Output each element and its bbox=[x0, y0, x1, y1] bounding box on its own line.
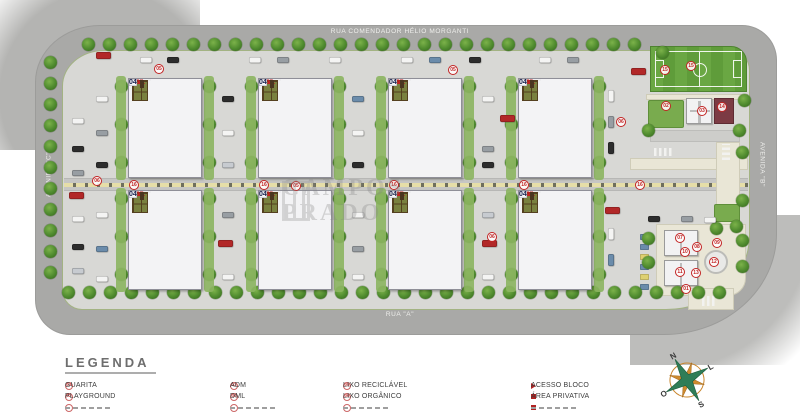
tree bbox=[397, 38, 410, 51]
unit-number: 04 bbox=[259, 191, 267, 198]
map-marker: 03 bbox=[697, 106, 707, 116]
tree bbox=[607, 38, 620, 51]
unit-number: 04 bbox=[129, 191, 137, 198]
crosswalk bbox=[654, 148, 672, 156]
car bbox=[96, 276, 108, 282]
car bbox=[96, 162, 108, 168]
car bbox=[482, 274, 494, 280]
tree bbox=[733, 124, 746, 137]
tree bbox=[692, 286, 705, 299]
waste-bin bbox=[640, 274, 649, 280]
car bbox=[167, 57, 179, 63]
car bbox=[72, 118, 84, 124]
car bbox=[482, 146, 494, 152]
tree bbox=[187, 38, 200, 51]
map-marker: 05 bbox=[448, 65, 458, 75]
compass-south: S bbox=[697, 399, 707, 410]
tree bbox=[355, 38, 368, 51]
car bbox=[329, 57, 341, 63]
legend-label: ACESSO BLOCO bbox=[531, 382, 589, 389]
map-marker: 15 bbox=[686, 61, 696, 71]
legend-label: ÁREA PRIVATIVA bbox=[531, 393, 589, 400]
car bbox=[352, 246, 364, 252]
street-name-top: RUA COMENDADOR HÉLIO MORGANTI bbox=[250, 28, 550, 35]
tree bbox=[44, 245, 57, 258]
tree bbox=[44, 224, 57, 237]
hedge-strip bbox=[376, 76, 386, 180]
legend-label: DML bbox=[230, 393, 245, 400]
car bbox=[72, 170, 84, 176]
tree bbox=[103, 38, 116, 51]
car bbox=[140, 57, 152, 63]
car bbox=[539, 57, 551, 63]
unit-number: 04 bbox=[389, 79, 397, 86]
car bbox=[222, 274, 234, 280]
legend-label-cropped bbox=[343, 407, 389, 409]
unit-number: 04 bbox=[259, 79, 267, 86]
car bbox=[249, 57, 261, 63]
tree bbox=[608, 286, 621, 299]
parking-row bbox=[650, 130, 740, 142]
tree bbox=[586, 38, 599, 51]
tree bbox=[628, 38, 641, 51]
tree bbox=[229, 38, 242, 51]
street-name-bottom: RUA "A" bbox=[330, 311, 470, 318]
tree bbox=[62, 286, 75, 299]
car bbox=[352, 274, 364, 280]
developer-watermark: CAMPOS PRADO bbox=[282, 168, 542, 234]
tree bbox=[271, 38, 284, 51]
car bbox=[482, 96, 494, 102]
compass-west: O bbox=[659, 388, 669, 399]
car bbox=[681, 216, 693, 222]
compass-east: L bbox=[706, 362, 715, 372]
car bbox=[96, 130, 108, 136]
map-marker: 10 bbox=[680, 247, 690, 257]
car bbox=[500, 115, 515, 122]
legend-label-cropped bbox=[65, 407, 111, 409]
tree bbox=[356, 286, 369, 299]
car bbox=[608, 90, 614, 102]
building-strip: 04030102BL.09BL.1002010304 bbox=[258, 78, 332, 178]
map-marker: 02 bbox=[661, 101, 671, 111]
tree bbox=[44, 203, 57, 216]
car bbox=[704, 217, 716, 223]
tree bbox=[376, 38, 389, 51]
tree bbox=[44, 182, 57, 195]
tree bbox=[230, 286, 243, 299]
street-name-left: AVENIDA "C" bbox=[46, 115, 53, 235]
tree bbox=[292, 38, 305, 51]
tree bbox=[44, 56, 57, 69]
tree bbox=[82, 38, 95, 51]
car bbox=[96, 52, 111, 59]
tree bbox=[208, 38, 221, 51]
car bbox=[96, 96, 108, 102]
building-strip: 04030102BL.13BL.1402010304 bbox=[128, 78, 202, 178]
tree bbox=[642, 256, 655, 269]
map-marker: 14 bbox=[717, 102, 727, 112]
tree bbox=[44, 77, 57, 90]
map-marker: 06 bbox=[616, 117, 626, 127]
car bbox=[469, 57, 481, 63]
car bbox=[222, 162, 234, 168]
site-plan-canvas: RUA COMENDADOR HÉLIO MORGANTI RUA "A" AV… bbox=[0, 0, 800, 412]
map-marker: 01 bbox=[681, 284, 691, 294]
map-marker: 08 bbox=[692, 242, 702, 252]
tree bbox=[730, 220, 743, 233]
car bbox=[218, 240, 233, 247]
legend-title: LEGENDA bbox=[65, 355, 156, 374]
goal-box-right bbox=[733, 60, 741, 78]
hedge-strip bbox=[594, 76, 604, 180]
tree bbox=[439, 38, 452, 51]
tree bbox=[738, 94, 751, 107]
map-marker: 16 bbox=[129, 180, 139, 190]
car bbox=[222, 130, 234, 136]
map-marker: 12 bbox=[709, 257, 719, 267]
tree bbox=[482, 286, 495, 299]
map-marker: 06 bbox=[92, 176, 102, 186]
tree bbox=[250, 38, 263, 51]
tree bbox=[565, 38, 578, 51]
tree bbox=[736, 260, 749, 273]
watermark-text: CAMPOS PRADO bbox=[282, 176, 462, 226]
legend-label-cropped bbox=[531, 407, 577, 409]
car bbox=[72, 216, 84, 222]
tree bbox=[736, 146, 749, 159]
hedge-strip bbox=[594, 188, 604, 292]
tree bbox=[83, 286, 96, 299]
building-strip: 04030102BL.01BL.0202010304 bbox=[518, 78, 592, 178]
car bbox=[222, 96, 234, 102]
hedge-strip bbox=[506, 76, 516, 180]
car bbox=[72, 268, 84, 274]
car bbox=[605, 207, 620, 214]
tree bbox=[44, 161, 57, 174]
car bbox=[222, 212, 234, 218]
hedge-strip bbox=[246, 76, 256, 180]
car bbox=[429, 57, 441, 63]
map-marker: 05 bbox=[154, 64, 164, 74]
compass-north: N bbox=[668, 351, 678, 362]
tree bbox=[656, 46, 669, 59]
crosswalk bbox=[702, 296, 716, 306]
building-strip: 04030102BL.15BL.1602010304 bbox=[128, 190, 202, 290]
tree bbox=[642, 124, 655, 137]
car bbox=[608, 116, 614, 128]
tree bbox=[481, 38, 494, 51]
tree bbox=[502, 38, 515, 51]
street-name-right: AVENIDA "B" bbox=[759, 105, 766, 225]
hedge-strip bbox=[204, 76, 214, 180]
map-marker: 09 bbox=[712, 238, 722, 248]
hedge-strip bbox=[116, 188, 126, 292]
car bbox=[352, 130, 364, 136]
compass-rose: N L S O bbox=[655, 348, 719, 412]
tree bbox=[145, 38, 158, 51]
hedge-strip bbox=[246, 188, 256, 292]
car bbox=[69, 192, 84, 199]
tree bbox=[523, 38, 536, 51]
tree bbox=[642, 232, 655, 245]
car bbox=[401, 57, 413, 63]
car bbox=[352, 96, 364, 102]
tree bbox=[629, 286, 642, 299]
map-marker: 07 bbox=[675, 233, 685, 243]
tree bbox=[166, 38, 179, 51]
car bbox=[648, 216, 660, 222]
map-marker: 11 bbox=[675, 267, 685, 277]
tree bbox=[650, 286, 663, 299]
car bbox=[567, 57, 579, 63]
legend-label: GUARITA bbox=[65, 382, 97, 389]
tree bbox=[44, 140, 57, 153]
tree bbox=[418, 38, 431, 51]
map-marker: 15 bbox=[660, 65, 670, 75]
tree bbox=[124, 38, 137, 51]
legend-label-cropped bbox=[230, 407, 276, 409]
tree bbox=[710, 222, 723, 235]
tree bbox=[460, 38, 473, 51]
hedge-strip bbox=[464, 76, 474, 180]
tree bbox=[713, 286, 726, 299]
tree bbox=[313, 38, 326, 51]
hedge-strip bbox=[116, 76, 126, 180]
tree bbox=[44, 119, 57, 132]
tree bbox=[44, 98, 57, 111]
car bbox=[608, 254, 614, 266]
car bbox=[96, 246, 108, 252]
building-strip: 04030102BL.05BL.0602010304 bbox=[388, 78, 462, 178]
map-marker: 16 bbox=[635, 180, 645, 190]
tree bbox=[544, 38, 557, 51]
tree bbox=[334, 38, 347, 51]
legend-label: ADM bbox=[230, 382, 246, 389]
car bbox=[72, 244, 84, 250]
car bbox=[72, 146, 84, 152]
car bbox=[608, 142, 614, 154]
car bbox=[277, 57, 289, 63]
tree bbox=[736, 234, 749, 247]
hedge-strip bbox=[334, 76, 344, 180]
legend-label: LIXO RECICLÁVEL bbox=[343, 382, 407, 389]
unit-number: 04 bbox=[519, 79, 527, 86]
crosswalk bbox=[722, 144, 730, 160]
car bbox=[608, 228, 614, 240]
hedge-strip bbox=[204, 188, 214, 292]
tree bbox=[44, 266, 57, 279]
tree bbox=[736, 194, 749, 207]
legend-label: PLAYGROUND bbox=[65, 393, 116, 400]
legend-label: LIXO ORGÂNICO bbox=[343, 393, 402, 400]
car bbox=[96, 212, 108, 218]
unit-number: 04 bbox=[129, 79, 137, 86]
car bbox=[631, 68, 646, 75]
map-marker: 13 bbox=[691, 268, 701, 278]
map-marker: 16 bbox=[259, 180, 269, 190]
